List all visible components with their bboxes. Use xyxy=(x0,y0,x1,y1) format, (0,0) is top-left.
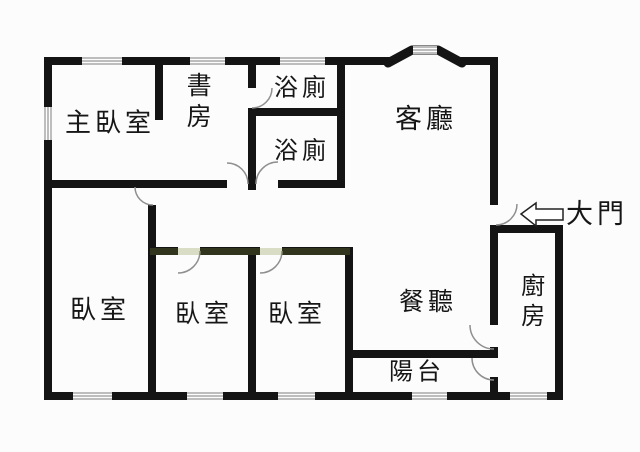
floorplan-canvas: 主臥室 書房 浴廁 浴廁 客廳 臥室 臥室 臥室 餐聽 陽台 廚房 大門 xyxy=(0,0,640,452)
door-arc-entrance xyxy=(496,204,517,225)
door-arc-kitchen-dining xyxy=(470,325,494,349)
wall-right-living xyxy=(490,57,498,205)
watermark-tint xyxy=(150,248,350,255)
door-arc-study xyxy=(227,163,248,184)
entrance-arrow-icon xyxy=(521,203,563,226)
door-arc-bathroom-upper xyxy=(252,88,272,108)
room-label-master-bedroom: 主臥室 xyxy=(65,110,155,137)
room-label-balcony: 陽台 xyxy=(389,359,445,384)
floorplan-drawing xyxy=(0,0,640,452)
wall-bed3-dining xyxy=(345,247,353,392)
window-bedroom1-bottom xyxy=(73,392,112,400)
wall-kitchen-right xyxy=(555,225,563,400)
wall-corridor-north-east xyxy=(278,180,345,188)
wall-bedroom1-right xyxy=(148,205,156,392)
room-label-living-room: 客廳 xyxy=(395,106,457,134)
window-master-top xyxy=(82,57,122,65)
window-kitchen-bottom xyxy=(510,392,547,400)
window-bay xyxy=(413,46,437,54)
window-balcony-bottom xyxy=(412,392,447,400)
door-arc-kitchen-balcony xyxy=(472,358,494,380)
wall-bed2-bed3 xyxy=(248,251,256,392)
entrance-label: 大門 xyxy=(566,201,628,229)
wall-kitchen-top xyxy=(490,225,563,233)
door-arc-bathroom-lower xyxy=(256,162,278,184)
wall-bath-divider xyxy=(248,108,345,116)
wall-kitchen-left-upper xyxy=(490,233,498,325)
window-master-left xyxy=(44,107,52,140)
window-bedroom2-bottom xyxy=(187,392,223,400)
wall-corridor-north-west xyxy=(44,180,227,188)
wall-master-study-stub xyxy=(155,57,163,120)
room-label-bedroom-middle: 臥室 xyxy=(175,301,233,327)
room-label-bedroom-left: 臥室 xyxy=(70,297,130,324)
room-label-kitchen: 廚房 xyxy=(517,273,542,333)
wall-bath-living xyxy=(337,57,345,188)
door-arc-bedroom-left xyxy=(135,187,153,205)
room-label-dining-room: 餐聽 xyxy=(399,289,457,315)
wall-study-bath-upper xyxy=(248,57,256,88)
room-label-bedroom-right: 臥室 xyxy=(268,301,326,327)
window-bath-top xyxy=(280,57,325,65)
window-study-top xyxy=(190,57,225,65)
room-label-study: 書房 xyxy=(184,72,210,134)
room-label-bathroom-lower: 浴廁 xyxy=(274,138,330,163)
room-label-bathroom-upper: 浴廁 xyxy=(274,75,330,100)
wall-study-bath-lower xyxy=(248,108,256,190)
window-bedroom3-bottom xyxy=(278,392,315,400)
